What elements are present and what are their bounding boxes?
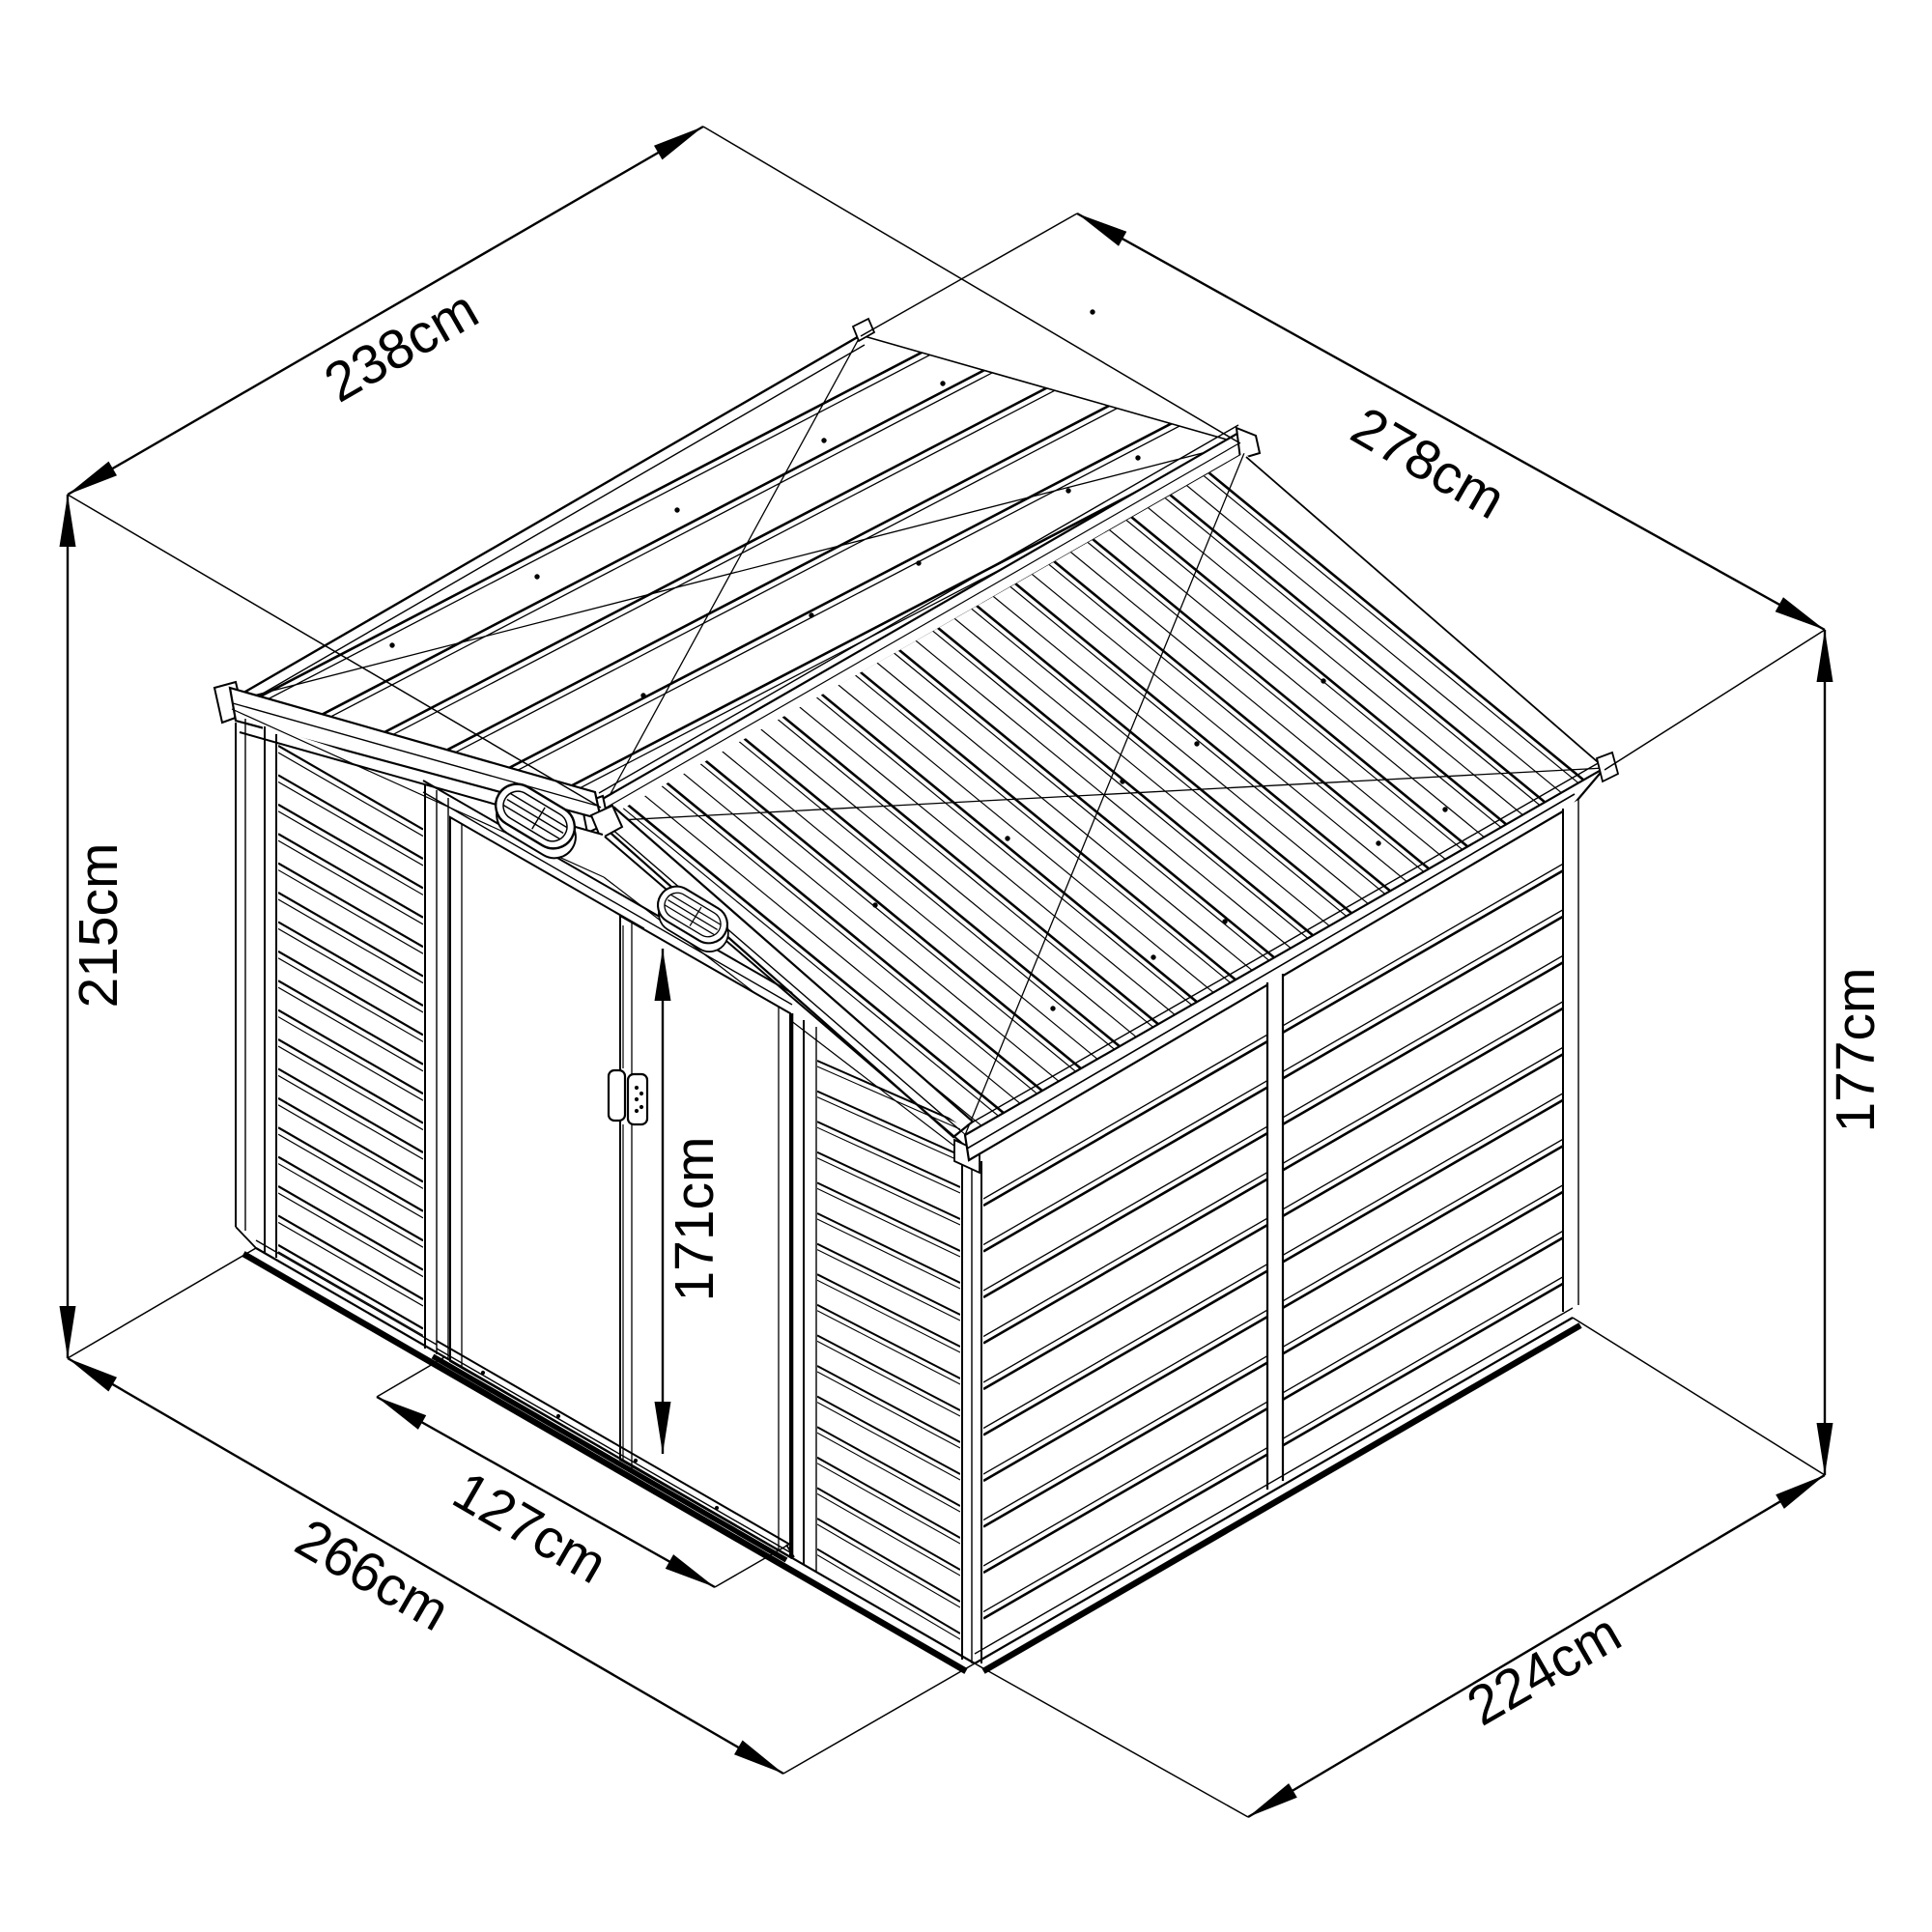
svg-text:171cm: 171cm — [664, 1136, 725, 1301]
svg-text:177cm: 177cm — [1825, 967, 1887, 1132]
svg-text:215cm: 215cm — [68, 842, 129, 1008]
